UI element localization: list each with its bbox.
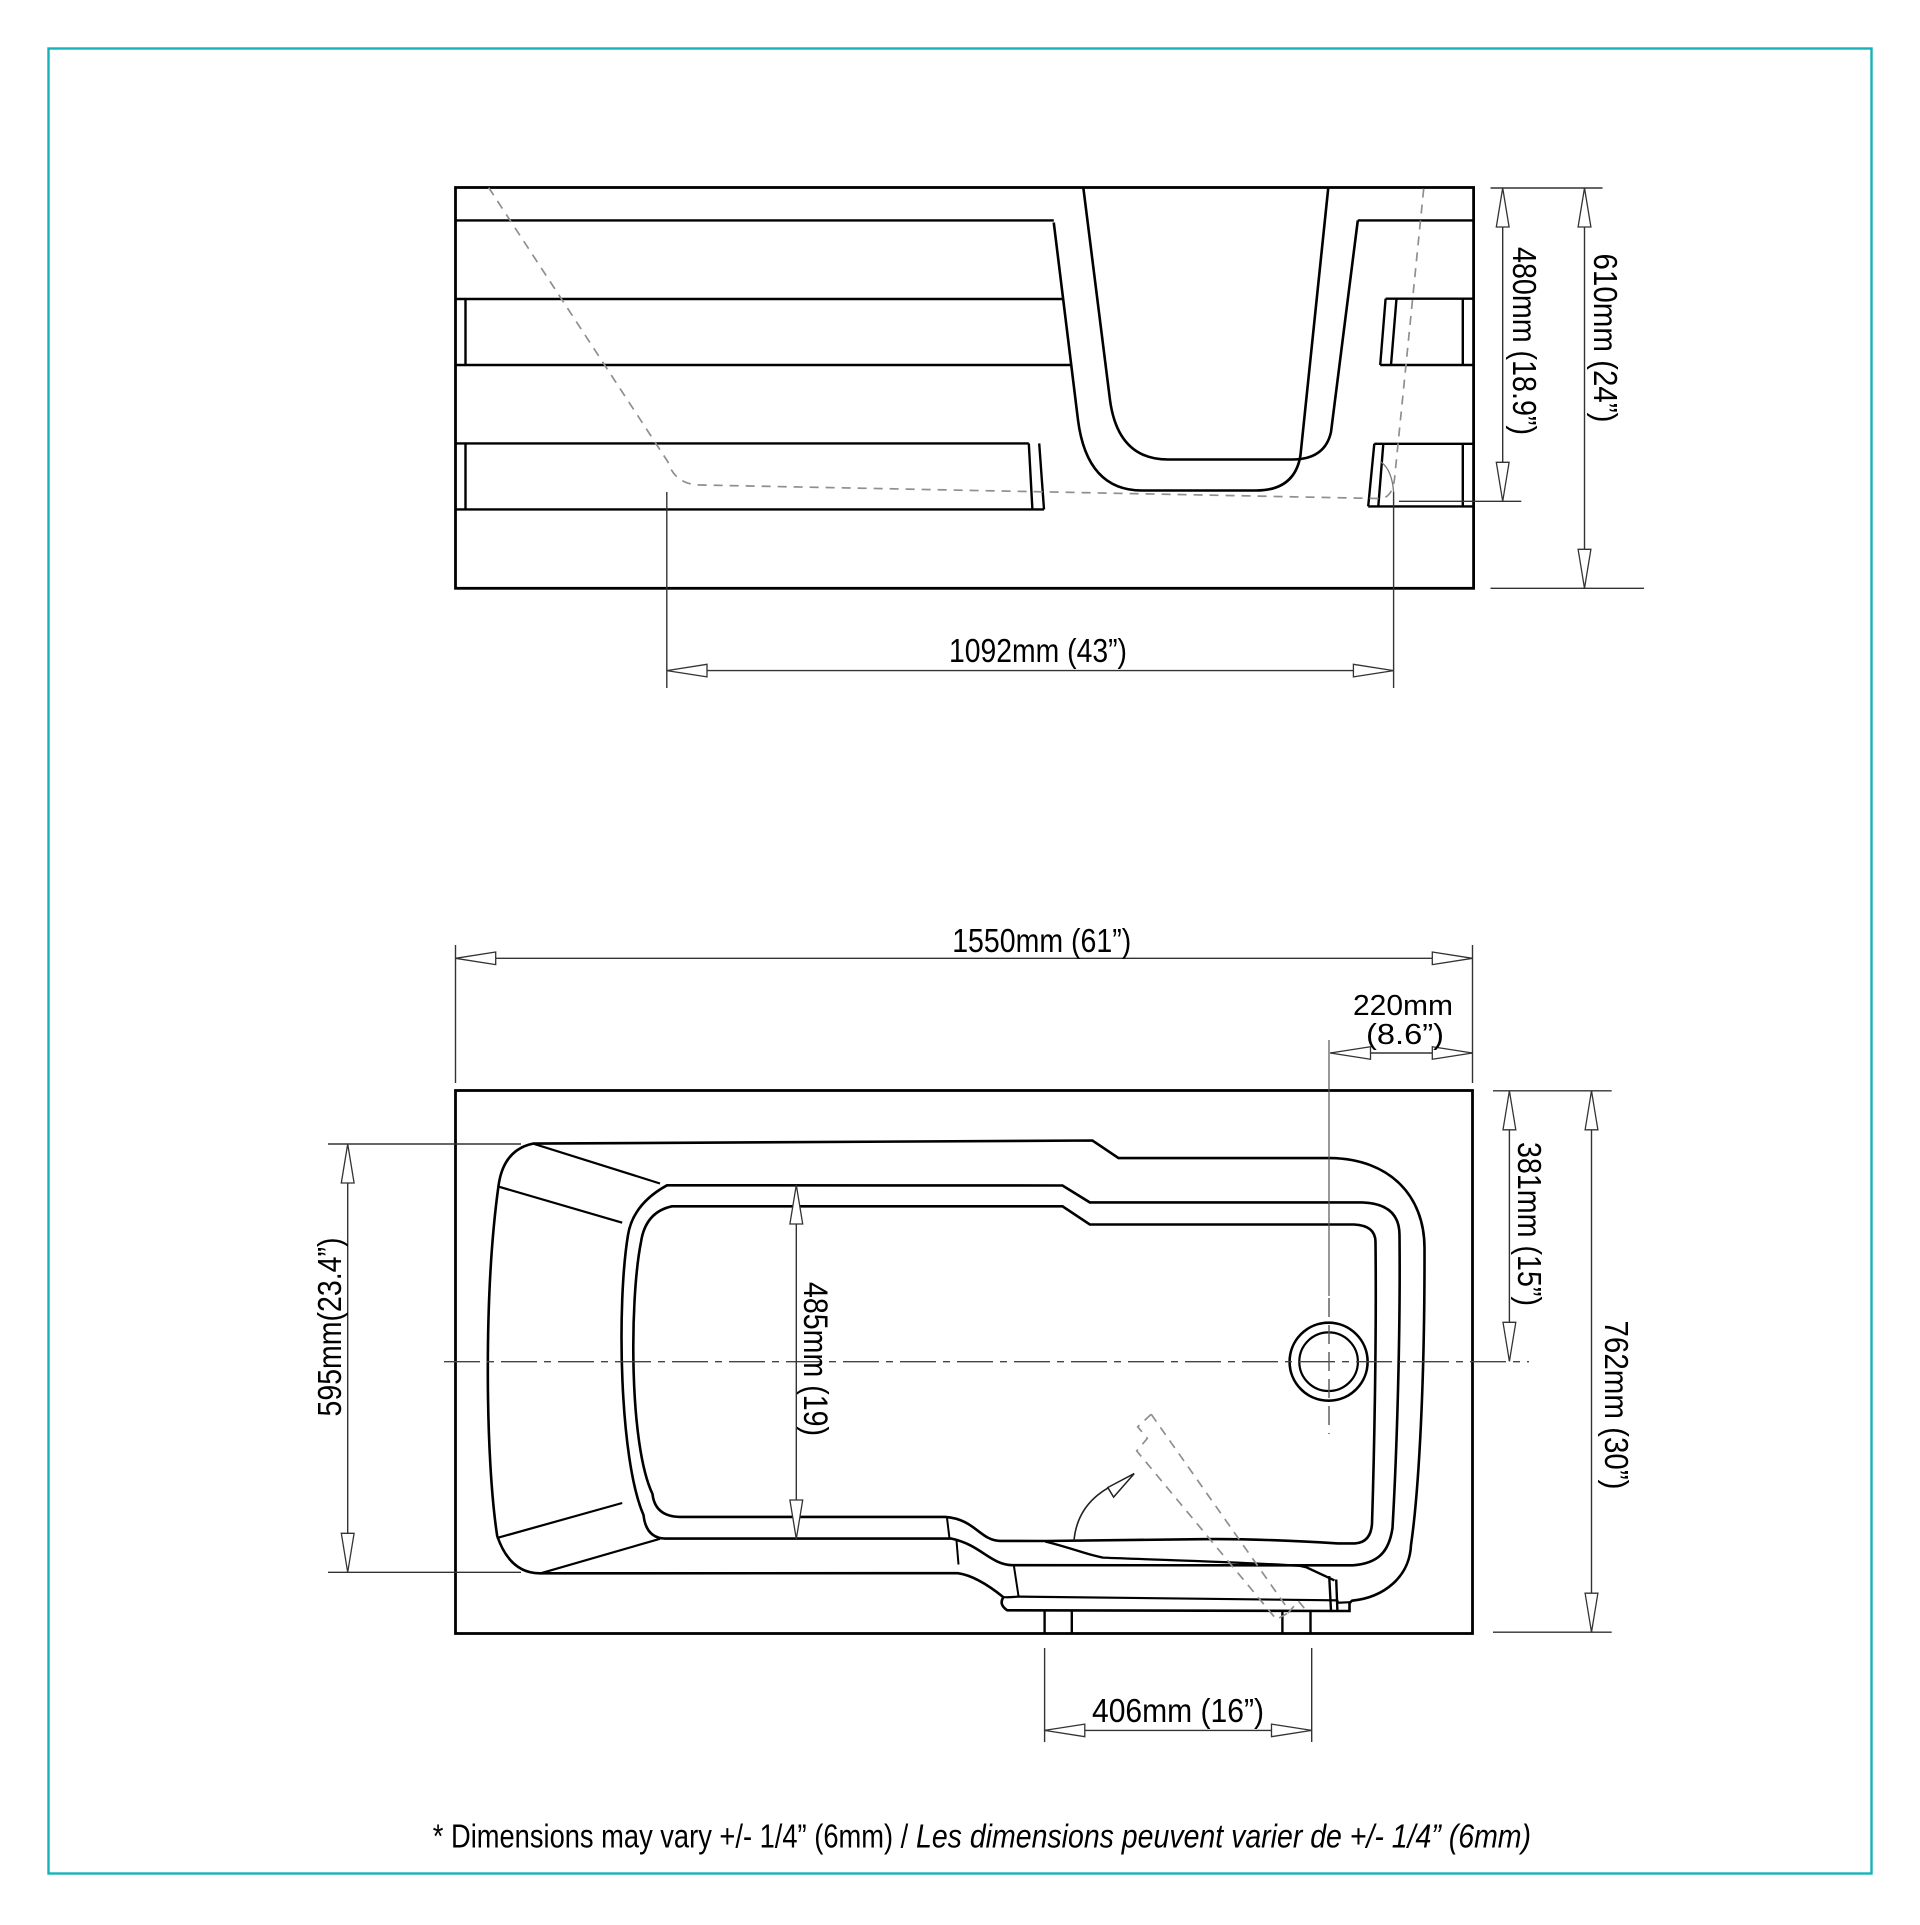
svg-text:1550mm (61”): 1550mm (61”) xyxy=(952,922,1131,959)
svg-text:406mm (16”): 406mm (16”) xyxy=(1092,1692,1264,1729)
svg-text:381mm (15”): 381mm (15”) xyxy=(1511,1142,1548,1306)
svg-text:610mm (24”): 610mm (24”) xyxy=(1587,254,1624,423)
svg-text:595mm(23.4”): 595mm(23.4”) xyxy=(311,1238,348,1417)
svg-text:485mm (19): 485mm (19) xyxy=(796,1282,834,1436)
svg-text:(8.6”): (8.6”) xyxy=(1366,1019,1444,1051)
svg-text:220mm: 220mm xyxy=(1353,990,1453,1022)
svg-text:* Dimensions may vary +/- 1/4”: * Dimensions may vary +/- 1/4” (6mm) / xyxy=(433,1818,916,1855)
svg-text:762mm (30”): 762mm (30”) xyxy=(1598,1321,1635,1490)
svg-text:1092mm (43”): 1092mm (43”) xyxy=(949,632,1127,669)
svg-text:Les dimensions peuvent varier: Les dimensions peuvent varier de +/- 1/4… xyxy=(916,1818,1531,1855)
svg-text:480mm (18.9”): 480mm (18.9”) xyxy=(1506,247,1543,435)
